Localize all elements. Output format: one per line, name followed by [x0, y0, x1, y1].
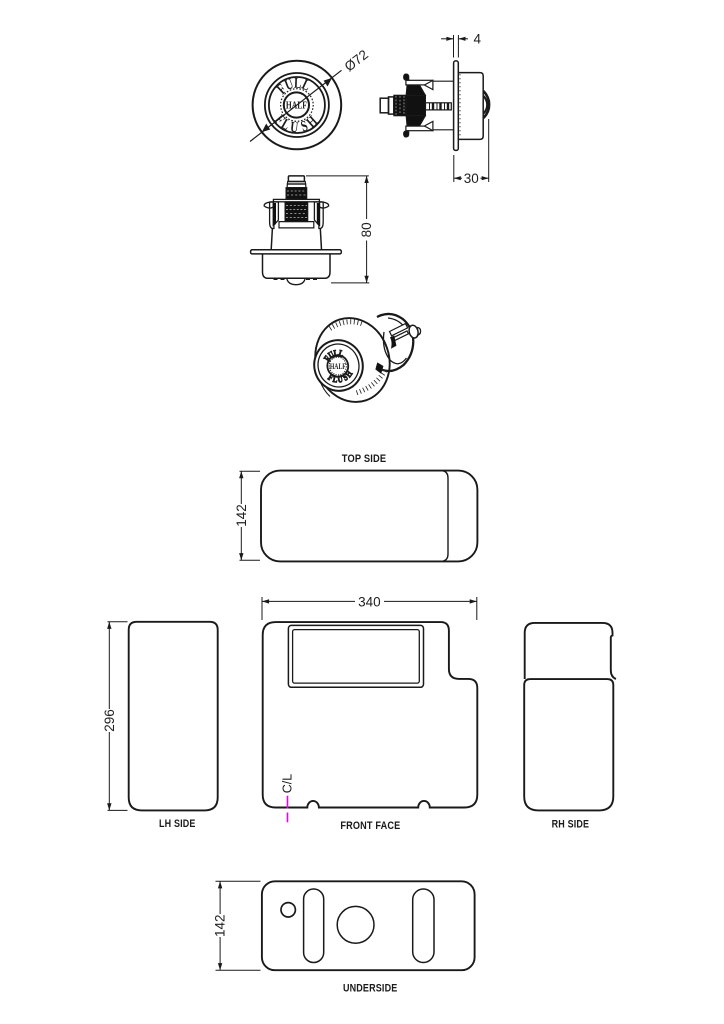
svg-text:LH SIDE: LH SIDE — [159, 818, 196, 830]
svg-text:HALF: HALF — [330, 362, 346, 371]
svg-text:296: 296 — [102, 709, 117, 732]
svg-text:UNDERSIDE: UNDERSIDE — [343, 983, 398, 995]
svg-text:4: 4 — [474, 32, 482, 47]
svg-text:RH SIDE: RH SIDE — [552, 819, 590, 831]
svg-text:80: 80 — [359, 222, 374, 237]
svg-text:340: 340 — [358, 594, 381, 609]
svg-text:C/L: C/L — [281, 774, 295, 794]
svg-text:TOP SIDE: TOP SIDE — [342, 453, 387, 465]
svg-text:142: 142 — [213, 914, 228, 937]
svg-text:30: 30 — [464, 171, 479, 186]
svg-text:142: 142 — [234, 504, 249, 527]
svg-text:FRONT FACE: FRONT FACE — [340, 820, 400, 832]
